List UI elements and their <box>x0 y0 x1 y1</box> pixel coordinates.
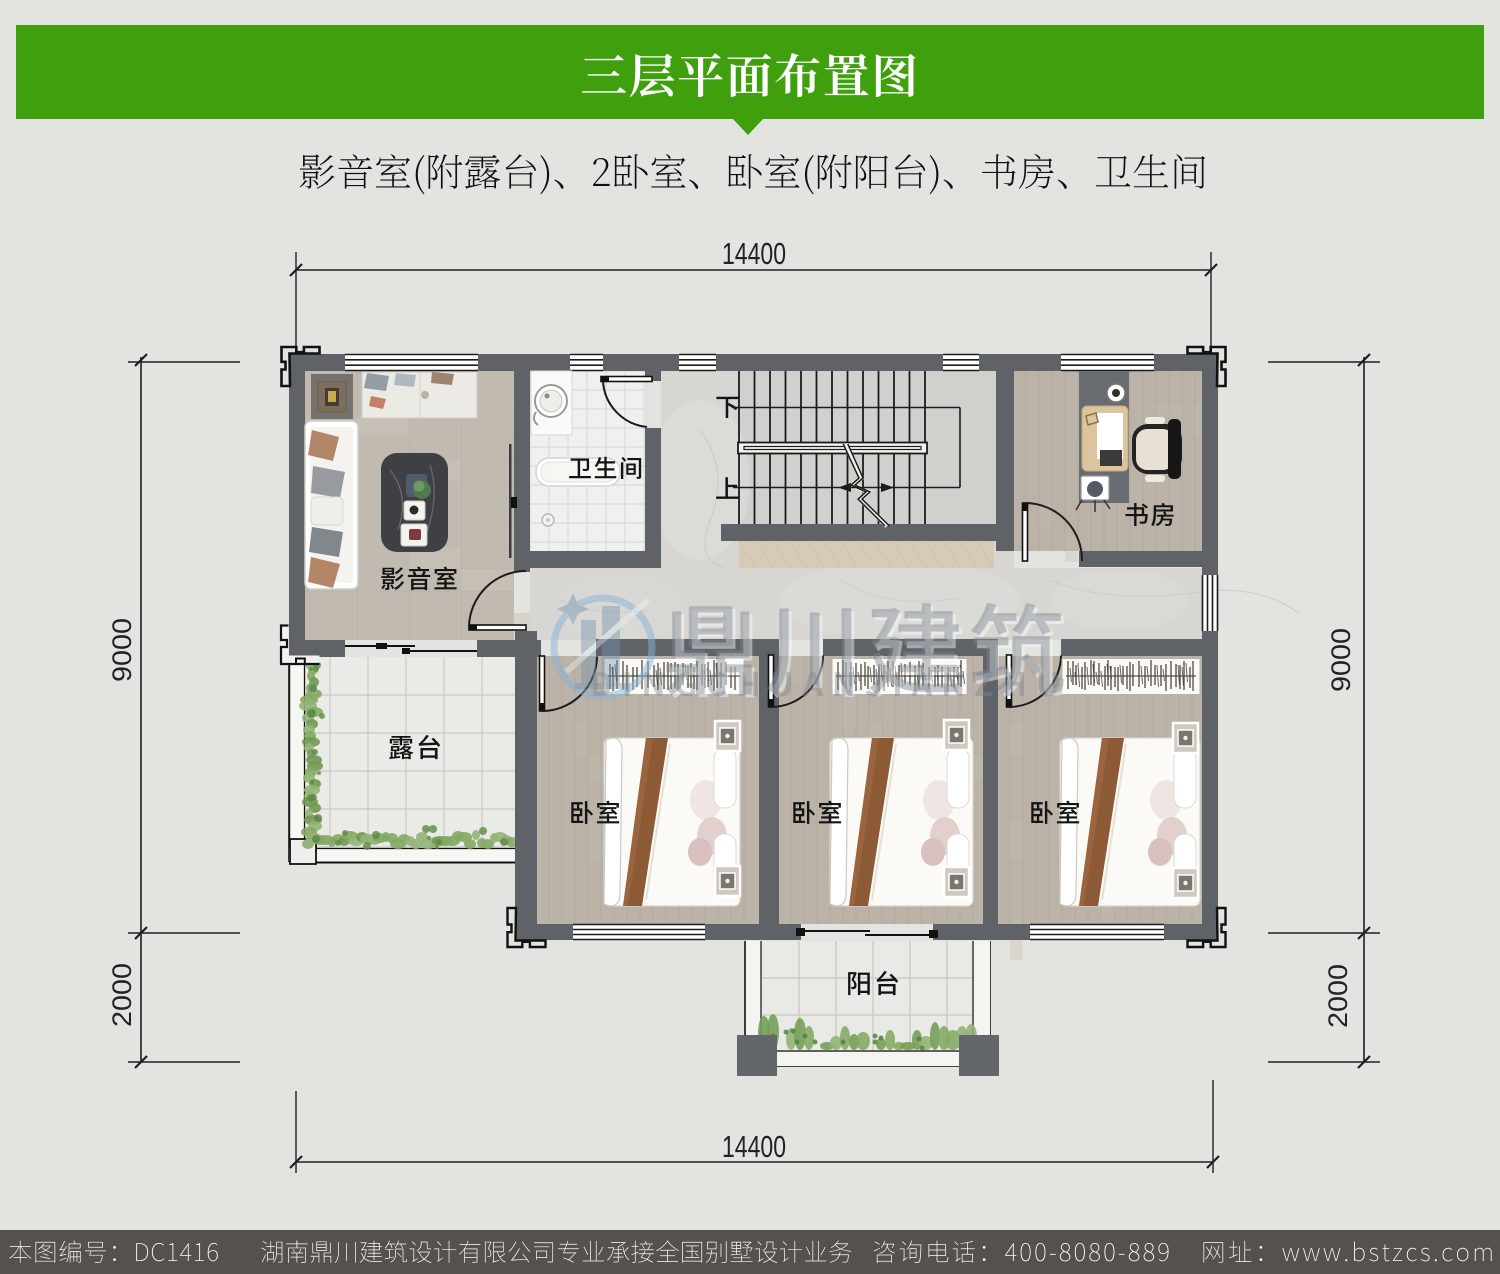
svg-text:9000: 9000 <box>1326 628 1356 692</box>
svg-text:2000: 2000 <box>107 963 137 1027</box>
svg-text:9000: 9000 <box>107 618 137 682</box>
svg-text:14400: 14400 <box>722 1129 786 1164</box>
svg-text:14400: 14400 <box>722 236 786 271</box>
svg-text:2000: 2000 <box>1323 964 1353 1028</box>
